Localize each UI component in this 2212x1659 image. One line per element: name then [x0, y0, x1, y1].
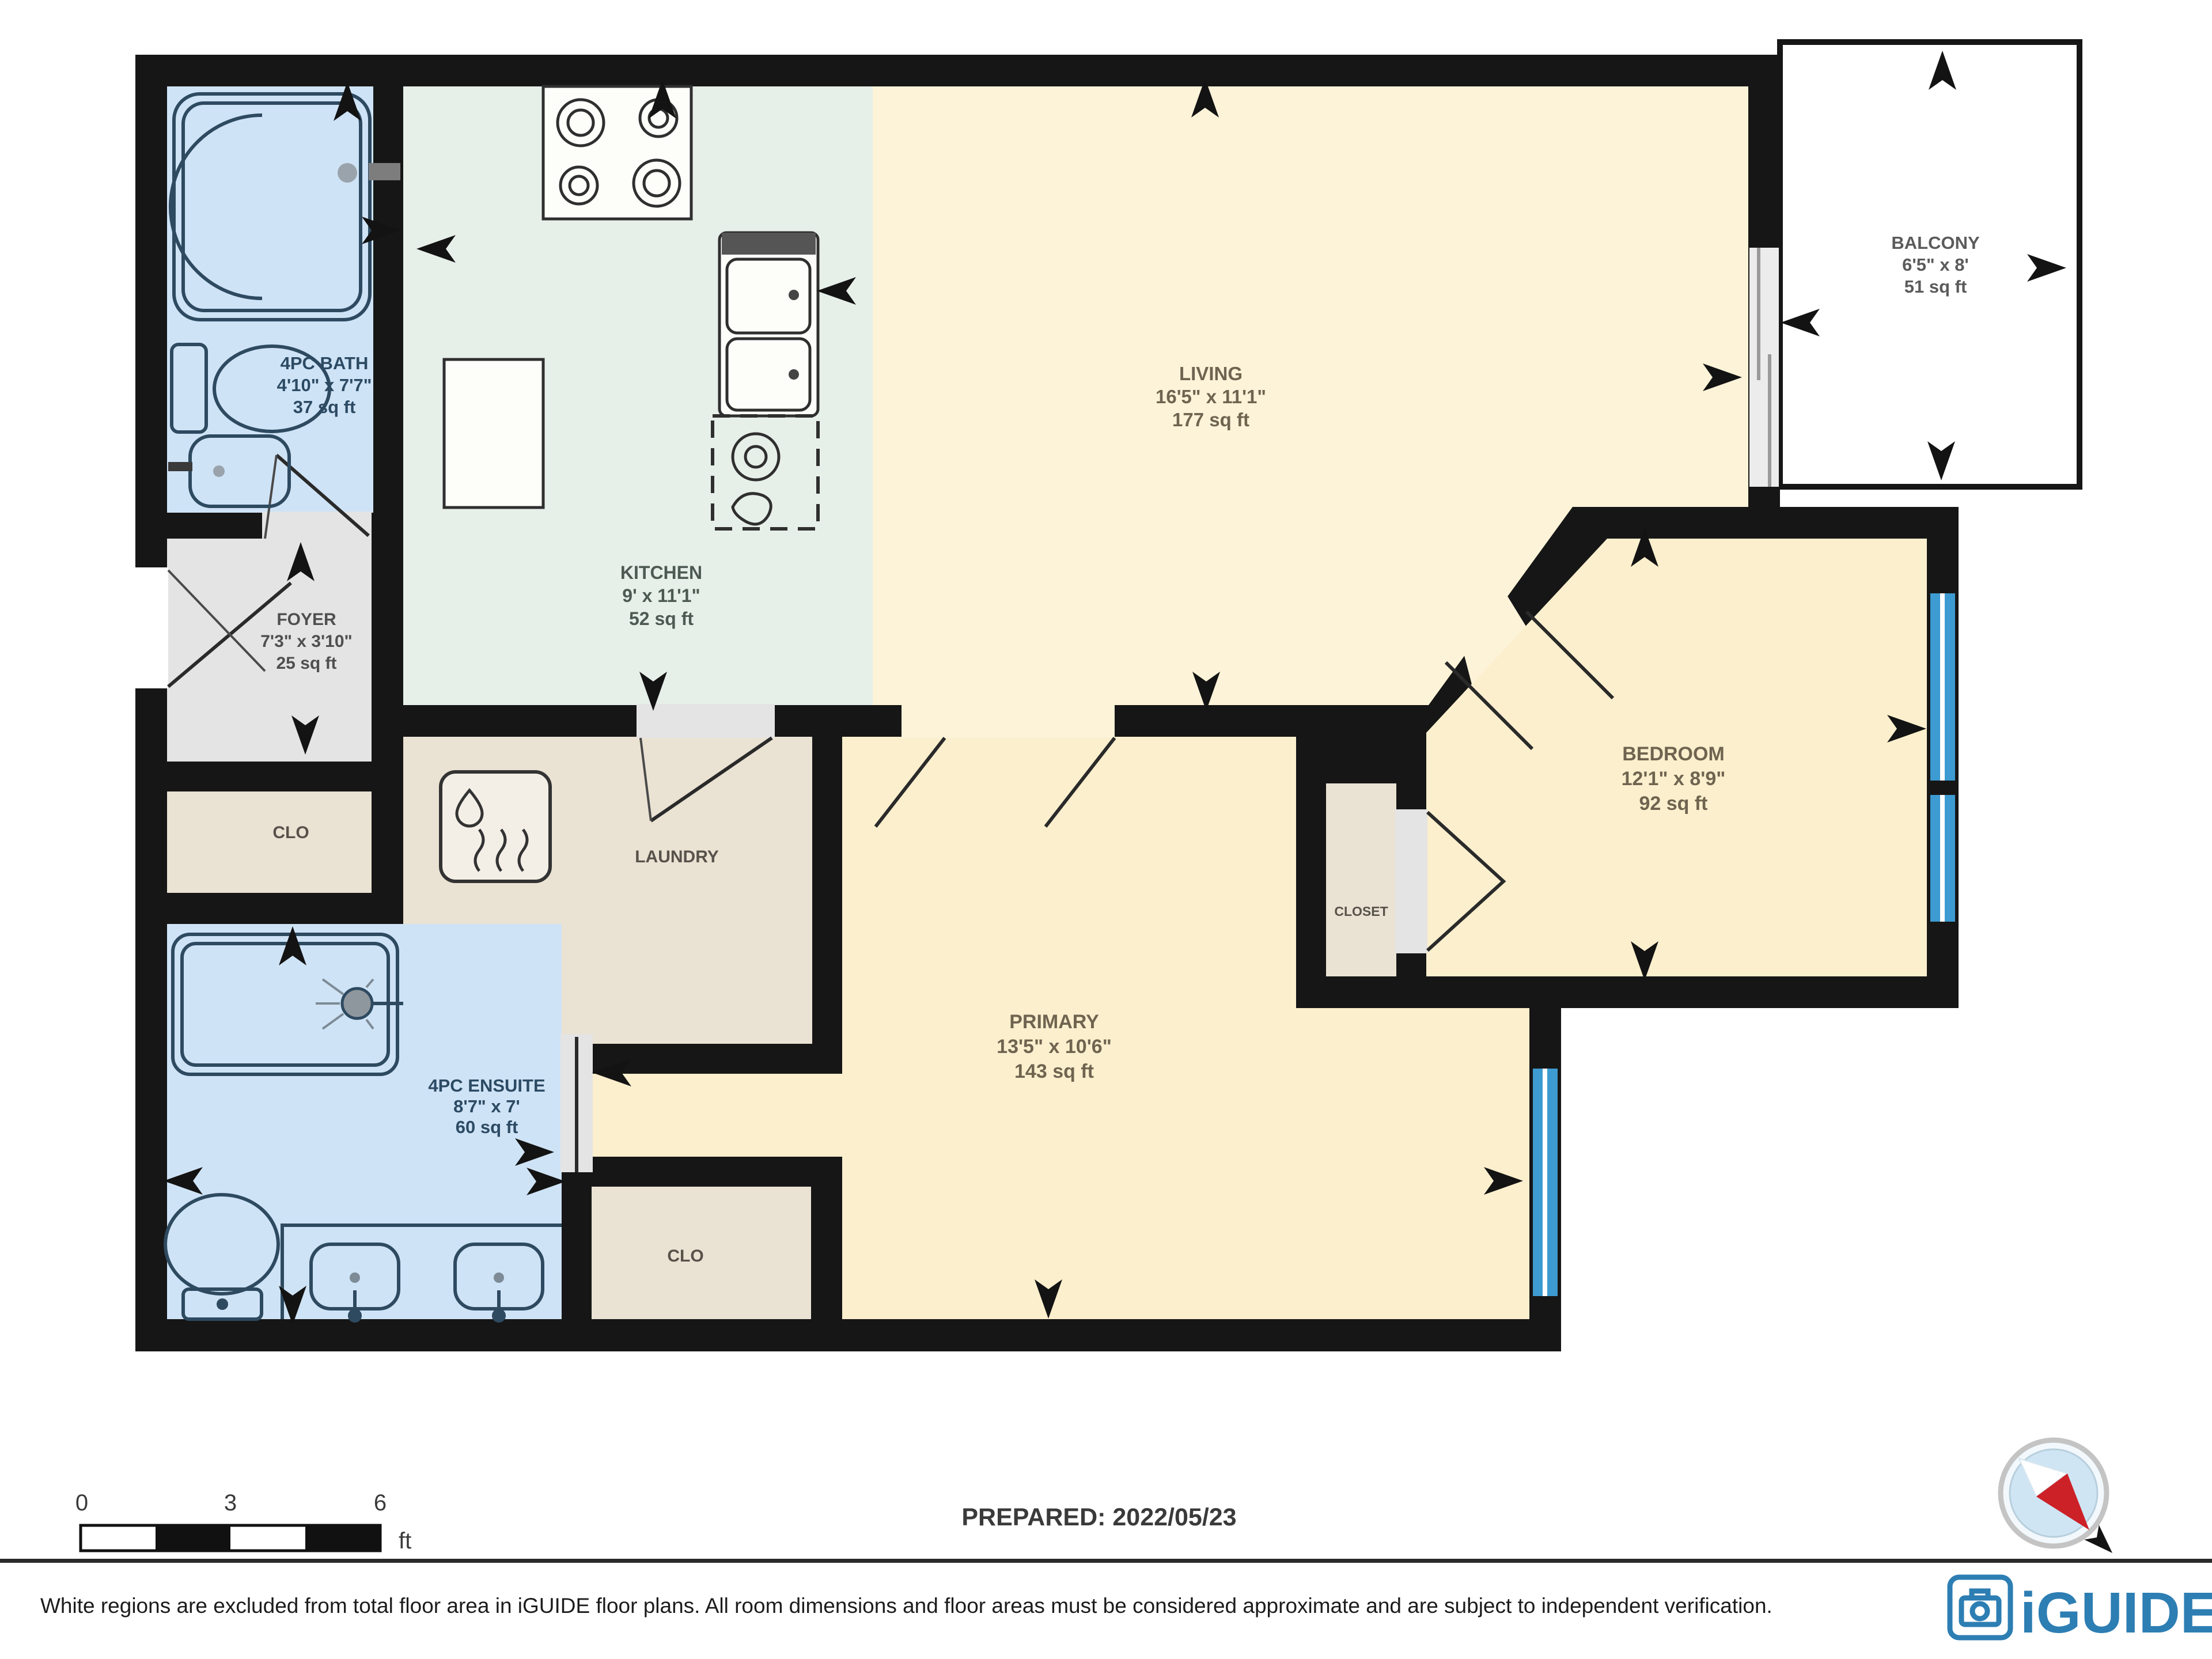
svg-text:KITCHEN: KITCHEN [620, 562, 702, 583]
svg-text:6'5" x 8': 6'5" x 8' [1902, 255, 1969, 275]
svg-text:ft: ft [399, 1528, 411, 1554]
svg-text:BALCONY: BALCONY [1891, 233, 1980, 253]
kitchen-sink [719, 233, 818, 416]
floor-plan-page: 4PC BATH 4'10" x 7'7" 37 sq ft KITCHEN 9… [0, 0, 2212, 1659]
svg-text:4PC ENSUITE: 4PC ENSUITE [428, 1075, 545, 1096]
closet-bedroom-door-gap [1395, 809, 1427, 953]
room-label-closet-bedroom: CLOSET [1334, 904, 1388, 919]
primary-window [1533, 1069, 1558, 1296]
water-heater [441, 772, 550, 881]
balcony-sliding-door [1749, 248, 1779, 487]
svg-text:7'3" x 3'10": 7'3" x 3'10" [260, 632, 353, 651]
room-bath-floor [167, 86, 373, 513]
compass-rose-icon [2001, 1440, 2120, 1560]
svg-text:PRIMARY: PRIMARY [1009, 1011, 1099, 1033]
room-closet-top-floor [167, 791, 372, 893]
svg-text:0: 0 [75, 1490, 88, 1516]
room-label-closet-bottom: CLO [667, 1247, 703, 1266]
svg-text:4'10" x 7'7": 4'10" x 7'7" [277, 375, 372, 395]
svg-text:177 sq ft: 177 sq ft [1172, 409, 1249, 430]
footer-divider [0, 1559, 2212, 1563]
entry-door-gap [131, 567, 168, 688]
room-label-balcony: BALCONY 6'5" x 8' 51 sq ft [1891, 233, 1980, 297]
iguide-camera-icon [1950, 1577, 2010, 1638]
svg-text:52 sq ft: 52 sq ft [629, 608, 694, 629]
svg-text:3: 3 [224, 1490, 237, 1516]
svg-text:12'1" x 8'9": 12'1" x 8'9" [1622, 768, 1726, 790]
svg-text:13'5" x 10'6": 13'5" x 10'6" [997, 1036, 1112, 1058]
floor-plan-canvas: 4PC BATH 4'10" x 7'7" 37 sq ft KITCHEN 9… [0, 0, 2212, 1659]
bedroom-window [1930, 593, 1955, 922]
footer-disclaimer: White regions are excluded from total fl… [40, 1594, 1772, 1618]
svg-text:LIVING: LIVING [1179, 363, 1243, 384]
pantry-cabinet [444, 359, 543, 507]
svg-text:16'5" x 11'1": 16'5" x 11'1" [1156, 386, 1266, 407]
room-label-kitchen: KITCHEN 9' x 11'1" 52 sq ft [620, 562, 702, 629]
room-label-laundry: LAUNDRY [635, 847, 719, 866]
svg-text:BEDROOM: BEDROOM [1622, 743, 1725, 765]
prepared-date: PREPARED: 2022/05/23 [961, 1503, 1236, 1531]
svg-text:143 sq ft: 143 sq ft [1014, 1060, 1094, 1082]
svg-text:51 sq ft: 51 sq ft [1904, 276, 1967, 297]
svg-text:92 sq ft: 92 sq ft [1639, 793, 1707, 815]
room-label-closet-top: CLO [272, 823, 309, 842]
svg-text:4PC BATH: 4PC BATH [281, 353, 369, 373]
primary-door-gap [902, 704, 1115, 738]
scale-bar: 0 3 6 ft [75, 1490, 411, 1554]
svg-text:6: 6 [374, 1490, 387, 1516]
room-closet-bedroom-floor [1326, 783, 1396, 976]
svg-text:37 sq ft: 37 sq ft [293, 397, 356, 417]
laundry-door-gap [637, 704, 775, 738]
svg-text:iGUIDE: iGUIDE [2020, 1581, 2212, 1645]
svg-text:FOYER: FOYER [276, 610, 336, 629]
svg-text:60 sq ft: 60 sq ft [456, 1117, 518, 1137]
svg-text:9' x 11'1": 9' x 11'1" [622, 585, 700, 606]
iguide-logo: iGUIDE [1950, 1577, 2212, 1645]
svg-text:25 sq ft: 25 sq ft [276, 654, 336, 673]
svg-text:8'7" x 7': 8'7" x 7' [453, 1096, 520, 1116]
